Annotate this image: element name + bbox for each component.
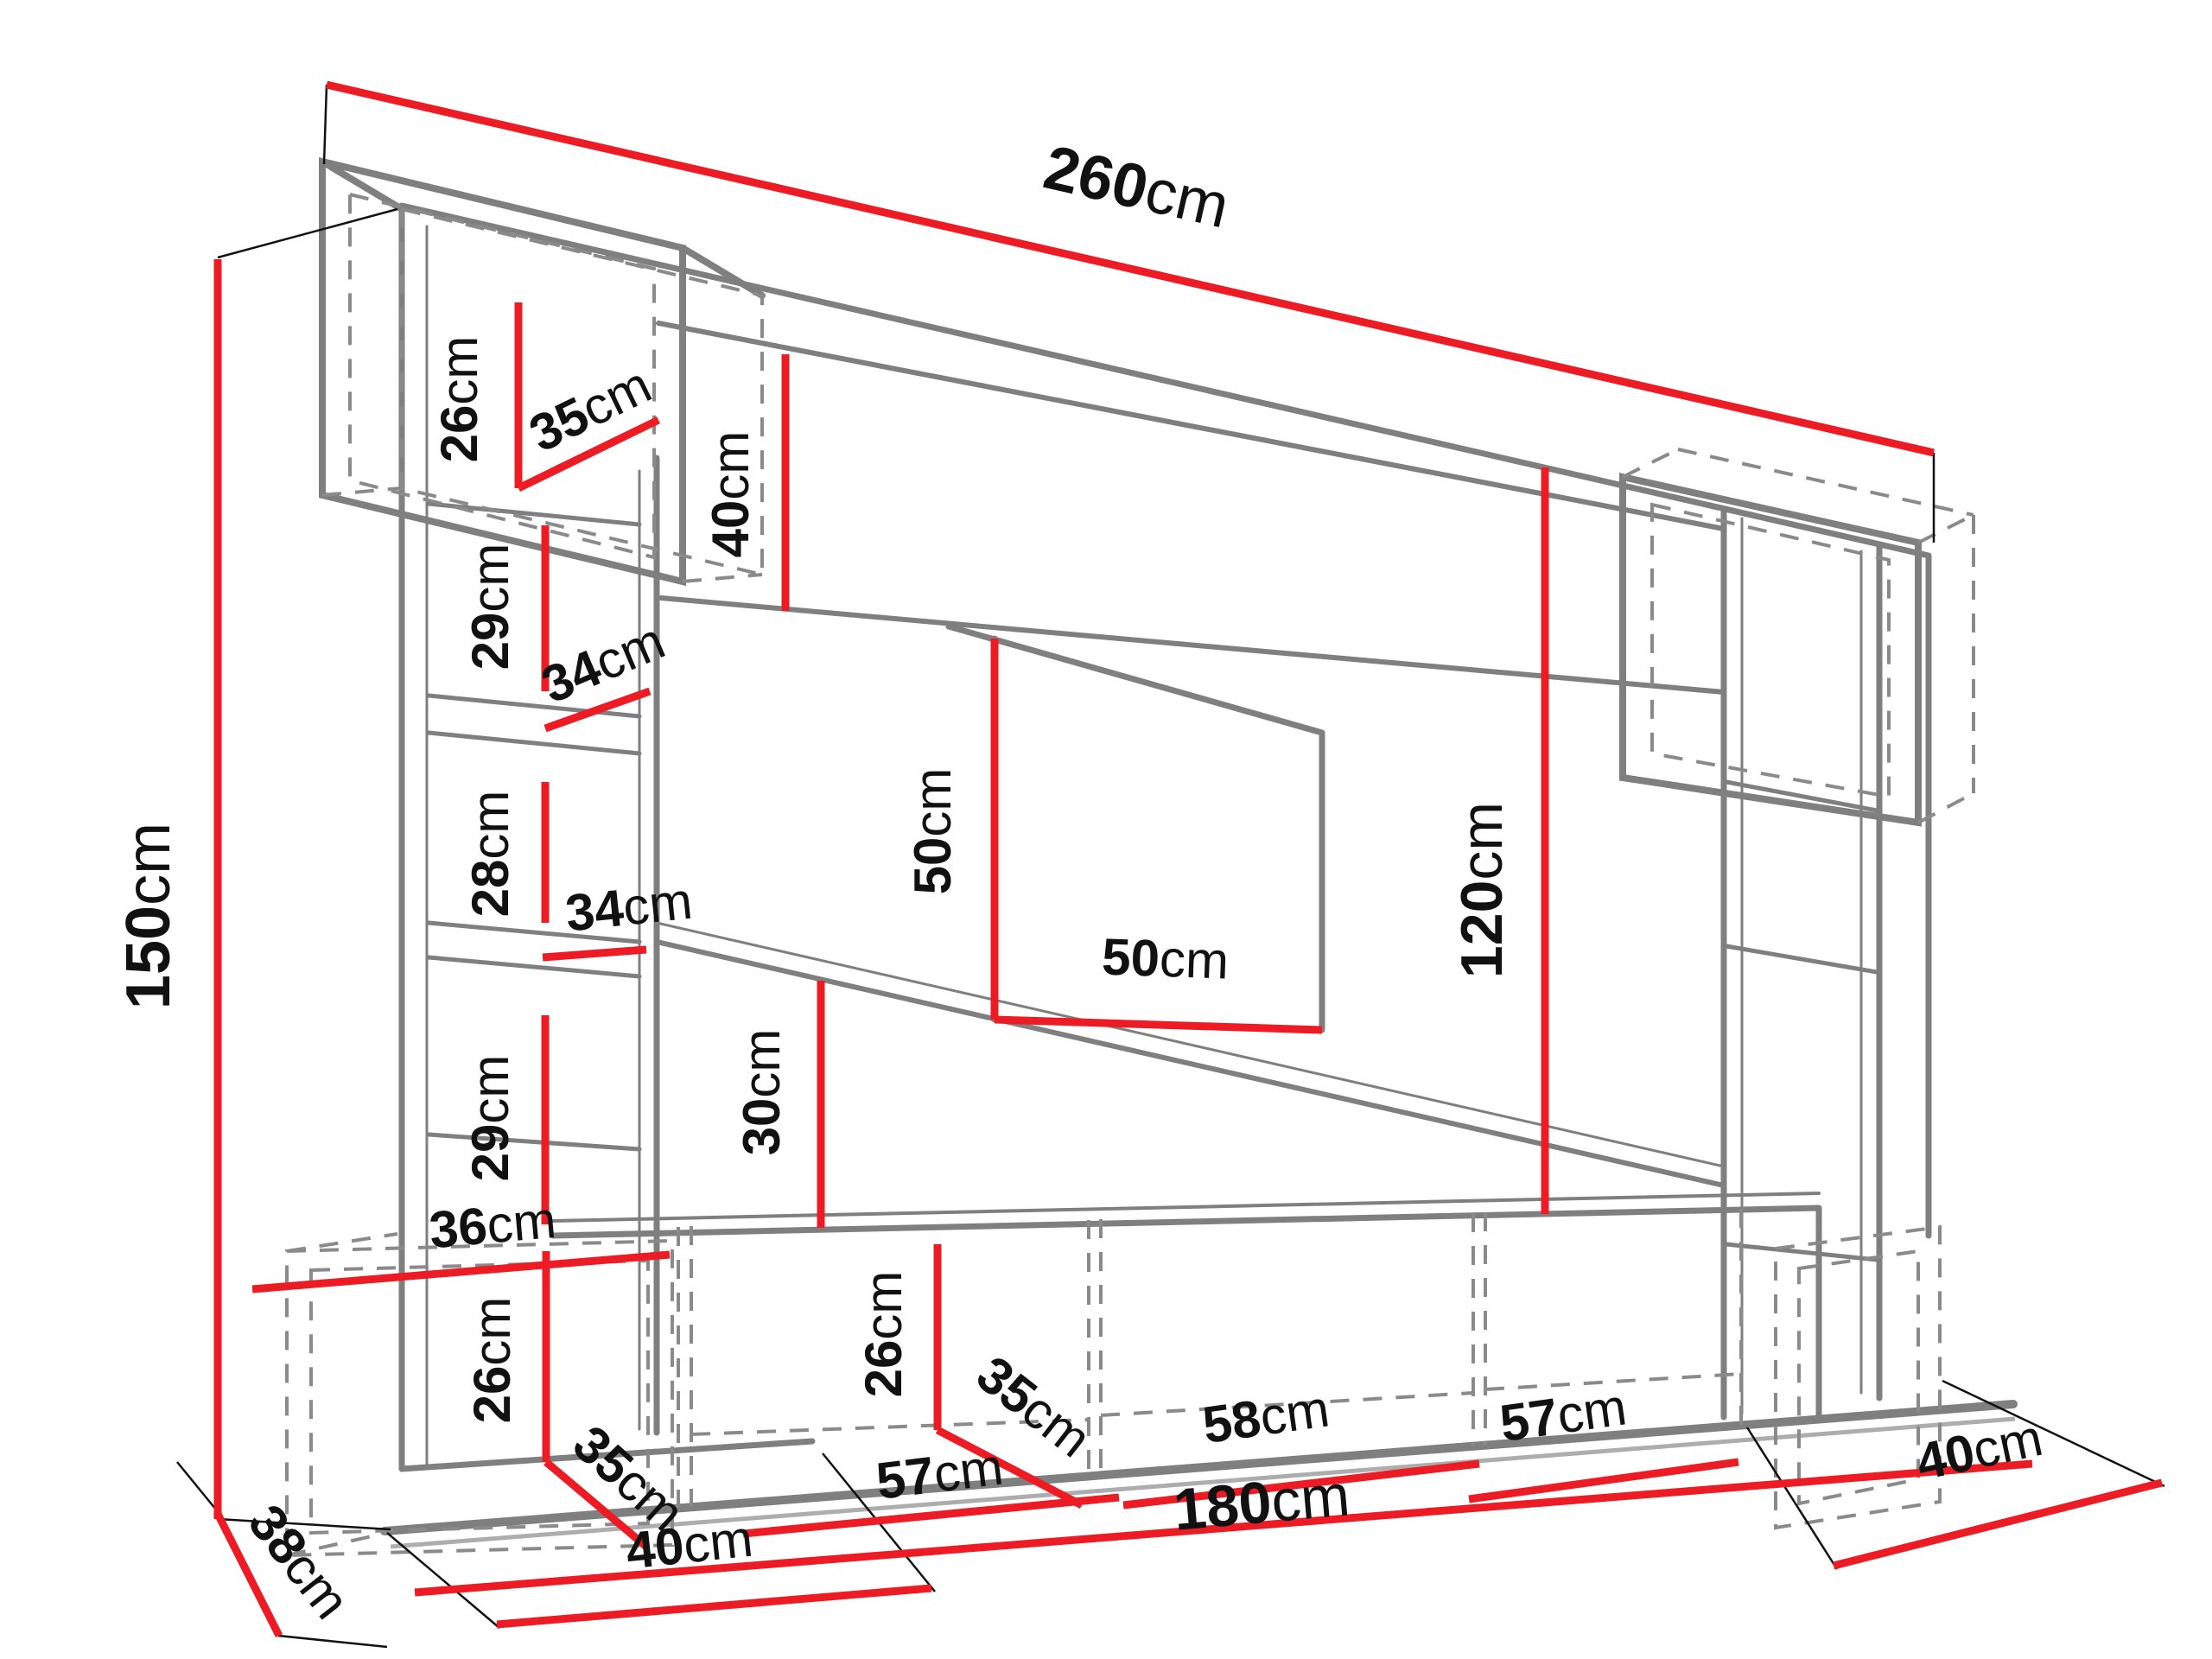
dim-value: 40 <box>702 500 760 558</box>
furniture-dimension-diagram: 260cm 150cm 26cm 35cm 40cm 29cm 34cm 28c… <box>0 0 2212 1659</box>
dim-label-left-section-3: 29cm <box>461 1055 519 1182</box>
dim-label-left-section-2: 28cm <box>461 791 519 918</box>
dim-label-niche-height: 50cm <box>904 768 962 895</box>
dim-label-left-section-1: 29cm <box>461 543 519 671</box>
dim-value: 50 <box>904 837 962 895</box>
dim-unit: cm <box>485 1191 559 1255</box>
furniture-solid-edges <box>322 162 2013 1531</box>
dim-value: 40 <box>623 1516 686 1580</box>
right-column-shelves <box>1726 782 1877 1260</box>
dim-unit: cm <box>855 1271 912 1340</box>
dim-unit: cm <box>702 431 760 500</box>
dim-unit: cm <box>733 1029 791 1098</box>
dim-value: 36 <box>427 1197 489 1260</box>
right-column-edges <box>1724 510 1879 1417</box>
top-left-cabinet-front <box>322 162 762 582</box>
dim-unit: cm <box>114 823 183 906</box>
dim-value: 57 <box>1497 1387 1561 1452</box>
dim-label-bottom-right-depth: 40cm <box>1911 1408 2047 1491</box>
dim-label-left-shelf-2: 34cm <box>563 872 695 943</box>
dim-label-right-height: 120cm <box>1449 802 1515 978</box>
dim-label-center-clearance: 30cm <box>733 1029 791 1156</box>
bench-top-edges <box>553 1208 1819 1417</box>
dim-line-left-shelf-2 <box>543 950 646 957</box>
dim-unit: cm <box>461 543 519 613</box>
left-column-shelves <box>429 504 639 1149</box>
dim-label-bench-comp-3: 57cm <box>1497 1377 1630 1452</box>
dim-label-niche-width: 50cm <box>1101 927 1230 989</box>
dim-unit: cm <box>620 872 696 937</box>
top-right-cabinet-front <box>1623 477 1918 823</box>
dim-value: 150 <box>114 906 183 1009</box>
dim-line-bottom-right-depth <box>1834 1483 2162 1566</box>
dim-value: 26 <box>855 1340 912 1398</box>
dim-value: 180 <box>1171 1469 1274 1543</box>
dim-label-left-height: 150cm <box>114 823 183 1009</box>
dim-unit: cm <box>1554 1377 1630 1444</box>
dim-unit: cm <box>1159 930 1230 990</box>
dim-unit: cm <box>1139 156 1235 241</box>
dim-value: 26 <box>463 1366 521 1424</box>
dim-value: 50 <box>1101 927 1160 987</box>
dim-label-top-left-cab-depth: 35cm <box>520 355 659 463</box>
dim-label-top-panel-height: 40cm <box>702 431 760 558</box>
dim-unit: cm <box>1268 1462 1352 1535</box>
dim-unit: cm <box>1967 1408 2047 1479</box>
dim-label-bench-height: 26cm <box>855 1271 912 1398</box>
dim-unit: cm <box>463 1297 521 1366</box>
dim-label-total-width: 260cm <box>1038 133 1235 242</box>
dim-unit: cm <box>461 791 519 860</box>
dim-value: 29 <box>461 613 519 671</box>
dim-unit: cm <box>430 336 488 405</box>
dim-label-bench-comp-2: 58cm <box>1199 1379 1333 1454</box>
dim-unit: cm <box>461 1055 519 1124</box>
dim-unit: cm <box>1449 802 1515 880</box>
dim-line-left-bottom-width <box>252 1255 670 1289</box>
dim-unit: cm <box>1256 1379 1333 1446</box>
dim-label-base-cab-height: 26cm <box>463 1297 521 1424</box>
bench-top-edge-thin <box>553 1193 1819 1221</box>
dim-label-bench-total-width: 180cm <box>1171 1462 1352 1543</box>
dim-value: 34 <box>563 879 626 943</box>
dim-unit: cm <box>931 1437 1007 1503</box>
dim-label-left-depth: 38cm <box>238 1494 361 1630</box>
dim-value: 29 <box>461 1124 519 1182</box>
dim-value: 26 <box>430 405 488 463</box>
dim-value: 30 <box>733 1098 791 1156</box>
dim-value: 58 <box>1199 1389 1264 1454</box>
dim-value: 28 <box>461 860 519 918</box>
dim-label-top-left-cab-height: 26cm <box>430 336 488 463</box>
dim-value: 120 <box>1449 880 1515 978</box>
dim-label-left-shelf-1: 34cm <box>533 612 672 715</box>
hidden-dashed-edges <box>287 194 1974 1555</box>
dim-label-left-bottom-width: 36cm <box>427 1191 558 1260</box>
dim-unit: cm <box>681 1510 756 1574</box>
dim-value: 260 <box>1038 133 1154 224</box>
dim-value: 57 <box>874 1446 938 1510</box>
top-panel-edges <box>658 323 1724 692</box>
dim-line-bottom-left-width <box>497 1588 931 1624</box>
dim-unit: cm <box>904 768 962 837</box>
